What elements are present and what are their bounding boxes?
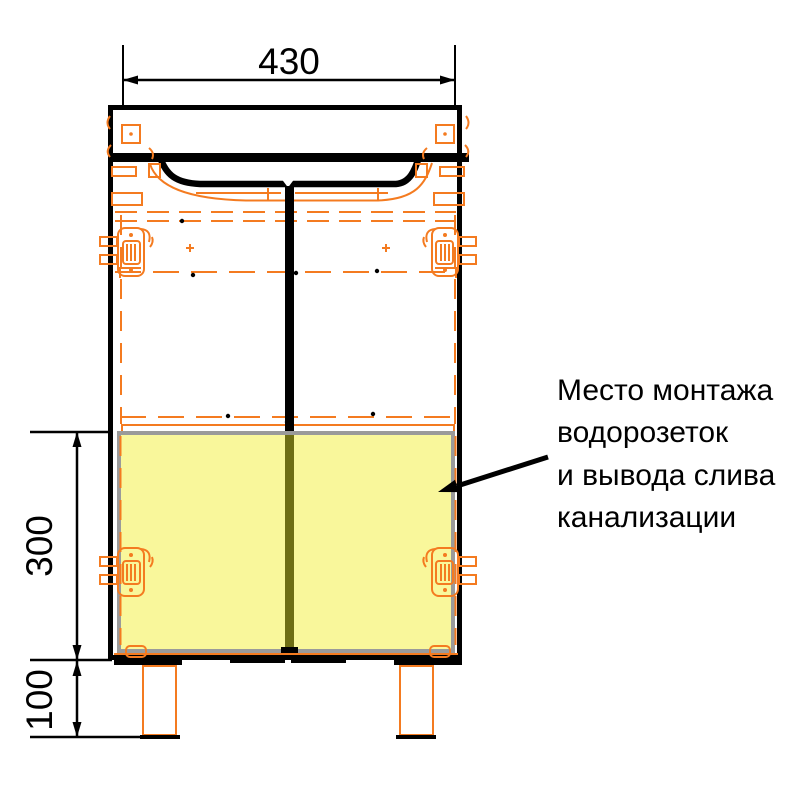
dimension-label-zone-height: 300 xyxy=(19,515,60,577)
installation-zone xyxy=(119,433,453,660)
arrowhead-up-icon xyxy=(73,661,82,676)
annotation-line-2: водорозеток xyxy=(557,416,729,449)
dimension-leg-height: 100 xyxy=(19,661,175,737)
arrowhead-right-icon xyxy=(440,76,455,85)
dimension-label-width: 430 xyxy=(258,41,320,82)
arrowhead-down-icon xyxy=(73,645,82,660)
annotation-line-4: канализации xyxy=(557,501,736,534)
callout-leader-line xyxy=(457,457,548,486)
cabinet-drawing: 430 300 100 Место монтажа водорозеток и … xyxy=(0,0,800,800)
drawing-page: 430 300 100 Место монтажа водорозеток и … xyxy=(0,0,800,800)
dimension-width-top: 430 xyxy=(123,41,455,107)
door-gap-through-zone xyxy=(285,435,294,649)
annotation-line-1: Место монтажа xyxy=(557,374,773,407)
arrowhead-left-icon xyxy=(123,76,138,85)
arrowhead-down-icon xyxy=(73,722,82,737)
dimension-zone-height: 300 xyxy=(19,432,112,660)
arrowhead-up-icon xyxy=(73,432,82,447)
door-gap xyxy=(285,186,294,435)
dimension-label-leg-height: 100 xyxy=(19,669,60,731)
annotation-callout: Место монтажа водорозеток и вывода слива… xyxy=(438,374,776,534)
reference-dots xyxy=(180,219,379,424)
annotation-line-3: и вывода слива xyxy=(557,459,776,492)
